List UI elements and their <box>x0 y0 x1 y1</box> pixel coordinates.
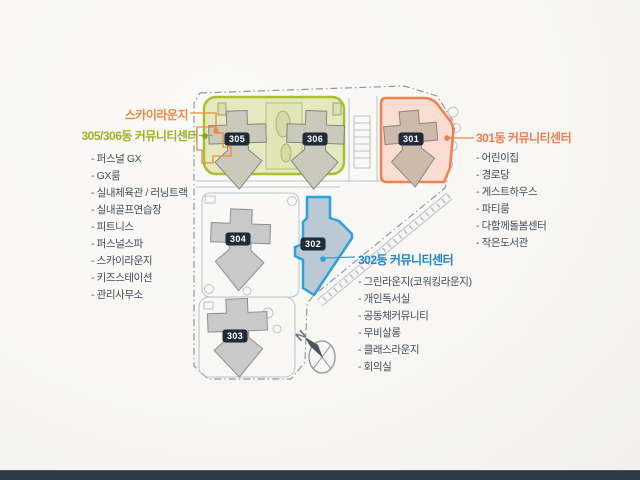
building-badge-301: 301 <box>399 133 423 145</box>
legend-305-306-items: - 퍼스널 GX - GX룸 - 실내체육관 / 러닝트랙 - 실내골프연습장 … <box>91 151 188 304</box>
list-item: - 어린이집 <box>476 150 546 167</box>
list-item: - 피트니스 <box>91 219 188 236</box>
list-item: - 작은도서관 <box>476 235 546 252</box>
list-item: - 회의실 <box>358 359 472 376</box>
building-304-footprint <box>209 208 271 292</box>
legend-302-items: - 그린라운지(코워킹라운지) - 개인독서실 - 공동체커뮤니티 - 무비살롱… <box>358 274 472 376</box>
list-item: - 공동체커뮤니티 <box>358 308 472 325</box>
list-item: - 퍼스널 GX <box>91 151 188 168</box>
legend-301-items: - 어린이집 - 경로당 - 게스트하우스 - 파티룸 - 다함께돌봄센터 - … <box>476 150 546 252</box>
legend-302-title: 302동 커뮤니티센터 <box>358 251 453 268</box>
list-item: - 클래스라운지 <box>358 342 472 359</box>
footer-bar <box>0 470 640 480</box>
building-badge-304: 304 <box>226 233 250 245</box>
list-item: - 무비살롱 <box>358 325 472 342</box>
list-item: - 실내체육관 / 러닝트랙 <box>91 185 188 202</box>
list-item: - 관리사무소 <box>91 287 188 304</box>
list-item: - GX룸 <box>91 168 188 185</box>
legend-301-title: 301동 커뮤니티센터 <box>476 129 571 146</box>
north-compass-icon <box>305 337 335 373</box>
list-item: - 게스트하우스 <box>476 184 546 201</box>
list-item: - 퍼스널스파 <box>91 236 188 253</box>
list-item: - 파티룸 <box>476 201 546 218</box>
building-badge-306: 306 <box>303 133 327 145</box>
callout-sky-lounge: 스카이라운지 <box>40 106 188 123</box>
list-item: - 스카이라운지 <box>91 253 188 270</box>
list-item: - 키즈스테이션 <box>91 270 188 287</box>
list-item: - 실내골프연습장 <box>91 202 188 219</box>
site-plan-infographic: 305 306 301 304 302 303 N 스카이라운지 305/306… <box>0 0 640 480</box>
building-badge-302: 302 <box>301 238 325 250</box>
list-item: - 개인독서실 <box>358 291 472 308</box>
legend-305-306-title: 305/306동 커뮤니티센터 <box>40 127 198 144</box>
list-item: - 경로당 <box>476 167 546 184</box>
building-badge-303: 303 <box>223 330 247 342</box>
building-badge-305: 305 <box>225 133 249 145</box>
list-item: - 그린라운지(코워킹라운지) <box>358 274 472 291</box>
list-item: - 다함께돌봄센터 <box>476 218 546 235</box>
